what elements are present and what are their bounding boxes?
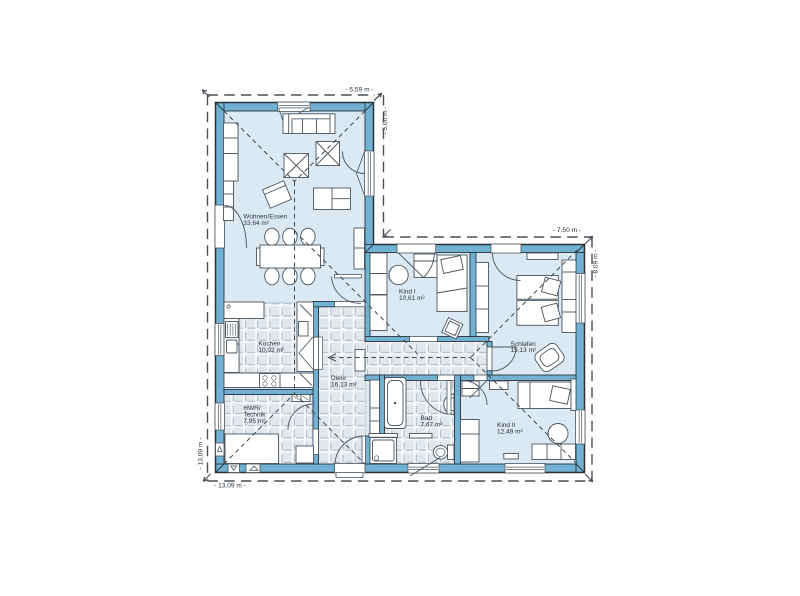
svg-text:- 5,00 m -: - 5,00 m - — [382, 106, 389, 134]
svg-text:7,67 m²: 7,67 m² — [421, 421, 444, 428]
svg-text:- 8,09 m -: - 8,09 m - — [593, 249, 600, 277]
svg-text:10,61 m²: 10,61 m² — [399, 295, 425, 302]
svg-text:15,13 m²: 15,13 m² — [511, 347, 537, 354]
svg-text:33,64 m²: 33,64 m² — [243, 220, 269, 227]
svg-text:16,13 m²: 16,13 m² — [331, 381, 357, 388]
svg-text:- 13,09 m -: - 13,09 m - — [214, 482, 246, 489]
svg-text:12,49 m²: 12,49 m² — [497, 428, 523, 435]
svg-text:- 13,09 m -: - 13,09 m - — [198, 438, 205, 470]
svg-text:- 7,50 m -: - 7,50 m - — [553, 227, 581, 234]
svg-text:10,02 m²: 10,02 m² — [258, 347, 284, 354]
svg-text:- 5,59 m -: - 5,59 m - — [345, 87, 373, 94]
svg-text:7,95 m²: 7,95 m² — [243, 418, 266, 425]
